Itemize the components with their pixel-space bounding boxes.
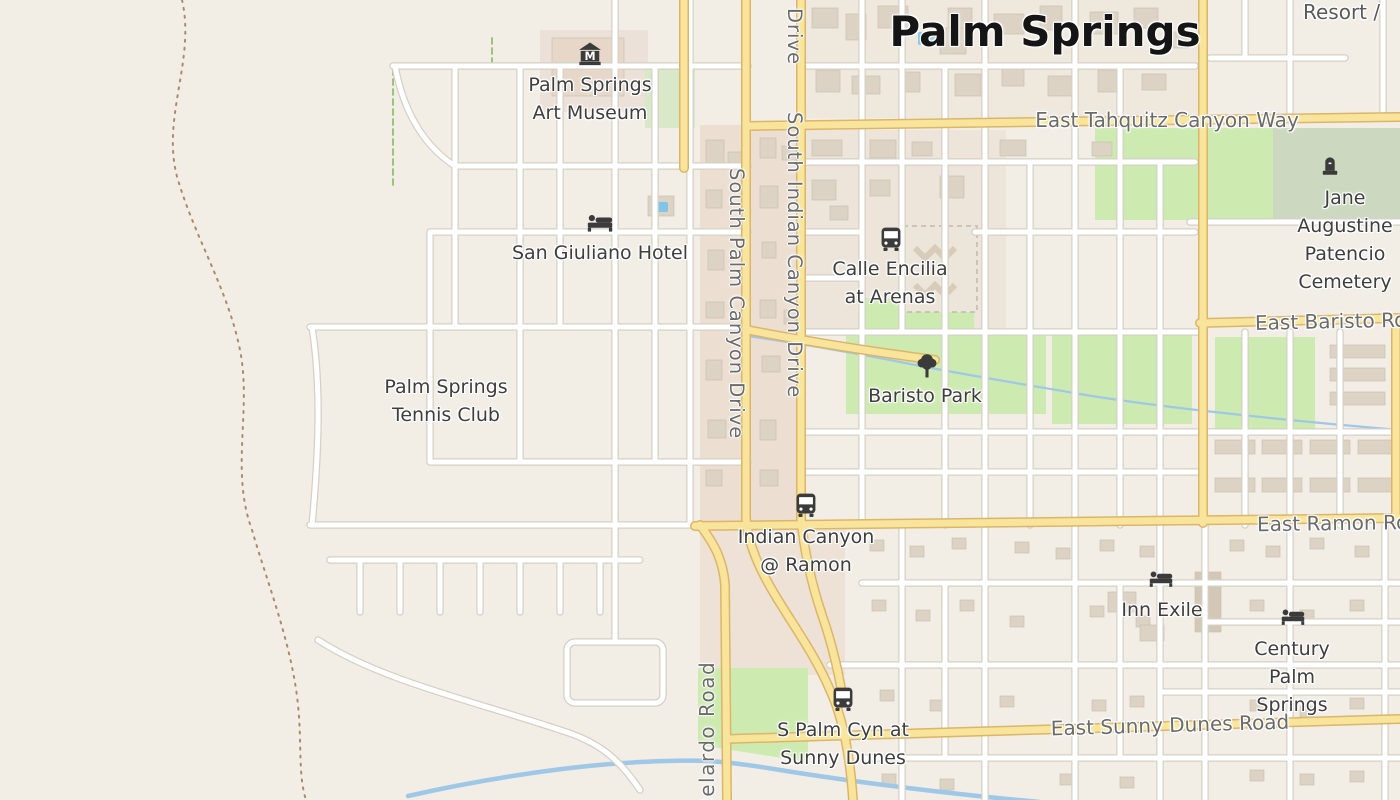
bed-icon (1149, 569, 1173, 591)
road-label-belardo-road: Belardo Road (695, 661, 719, 800)
bus-icon (795, 492, 817, 522)
map-viewport[interactable]: M (0, 0, 1400, 800)
trail-paths (173, 0, 492, 800)
road-label-south-palm-canyon-drive: South Palm Canyon Drive (724, 168, 748, 439)
svg-text:M: M (584, 50, 595, 63)
bed-icon (1281, 607, 1305, 629)
bed-icon (587, 212, 613, 236)
resort-complex-outline (903, 226, 977, 312)
road-label-south-indian-canyon-drive: South Indian Canyon Drive (782, 112, 806, 398)
tree-icon (915, 353, 939, 384)
bus-icon (880, 226, 902, 256)
road-label-drive-partial: Drive (782, 8, 806, 65)
museum-icon: M (578, 42, 602, 70)
bus-icon (832, 686, 854, 716)
grave-icon (1319, 155, 1341, 181)
